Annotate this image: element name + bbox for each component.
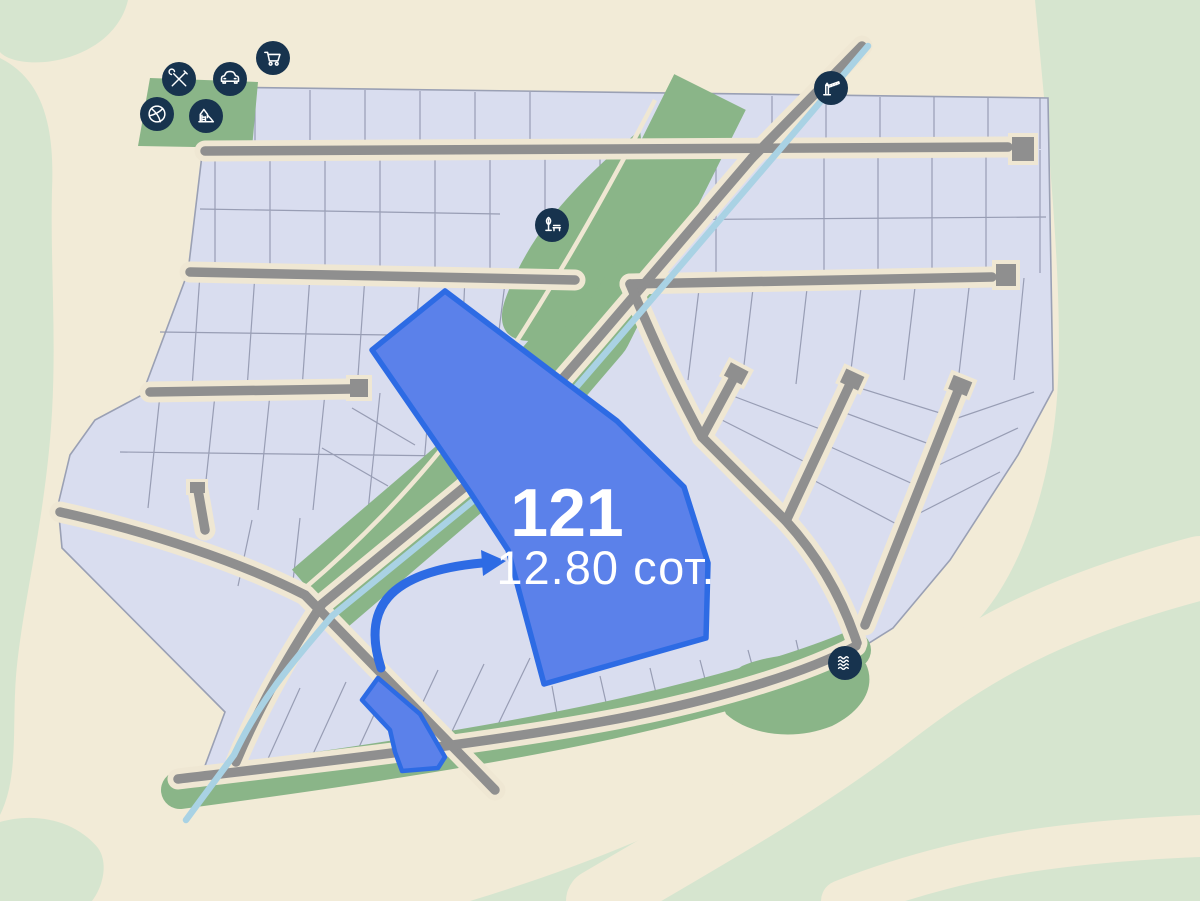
marker-circle[interactable] bbox=[213, 62, 247, 96]
marker-circle[interactable] bbox=[189, 99, 223, 133]
road-top bbox=[205, 147, 1008, 151]
shopping-cart-marker[interactable] bbox=[256, 41, 290, 75]
marker-circle[interactable] bbox=[828, 646, 862, 680]
car-marker[interactable] bbox=[213, 62, 247, 96]
masterplan-map: 121 12.80 сот. bbox=[0, 0, 1200, 901]
road-mid-left bbox=[150, 389, 350, 392]
water-marker[interactable] bbox=[828, 646, 862, 680]
plot-number-label: 121 bbox=[510, 475, 623, 551]
park-marker[interactable] bbox=[535, 208, 569, 242]
playground-marker[interactable] bbox=[189, 99, 223, 133]
marker-circle[interactable] bbox=[814, 71, 848, 105]
workshop-tools-marker[interactable] bbox=[162, 62, 196, 96]
plot-area-label: 12.80 сот. bbox=[496, 541, 715, 594]
marker-circle[interactable] bbox=[535, 208, 569, 242]
marker-circle[interactable] bbox=[256, 41, 290, 75]
basketball-marker[interactable] bbox=[140, 97, 174, 131]
entrance-barrier-marker[interactable] bbox=[814, 71, 848, 105]
